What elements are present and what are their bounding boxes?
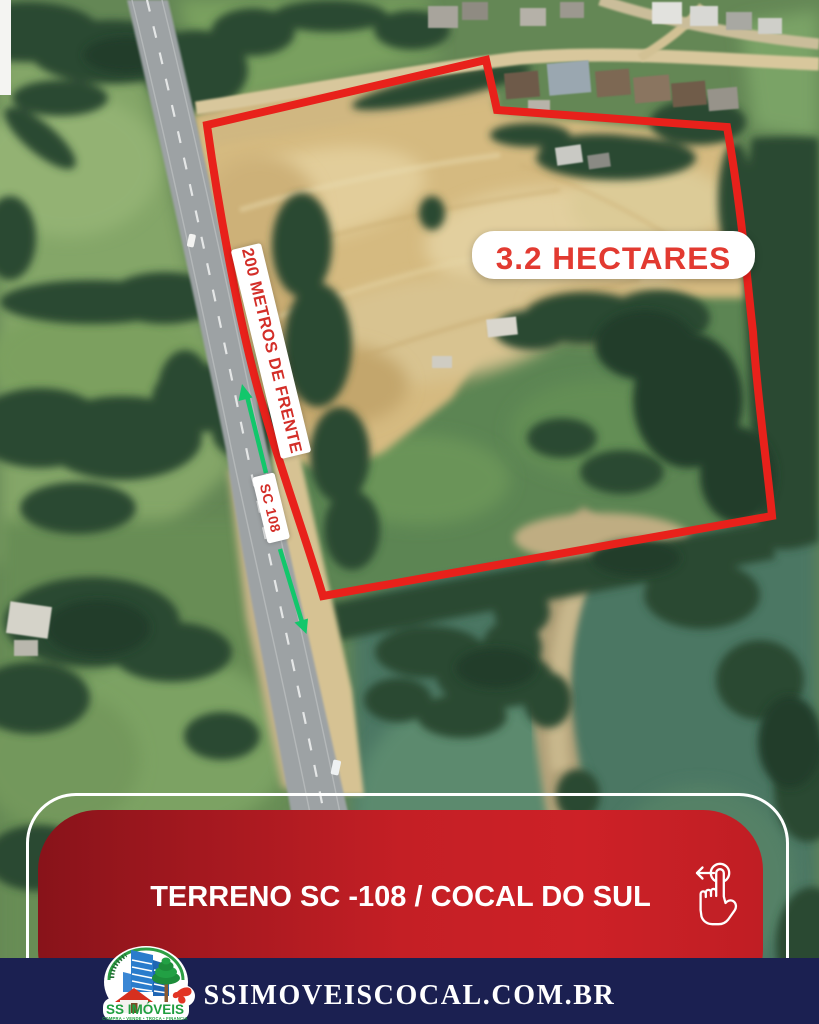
svg-text:SS IMÓVEIS: SS IMÓVEIS bbox=[106, 1002, 184, 1017]
svg-text:COMPRA • VENDE • TROCA • FINAN: COMPRA • VENDE • TROCA • FINANCIA bbox=[102, 1016, 188, 1021]
